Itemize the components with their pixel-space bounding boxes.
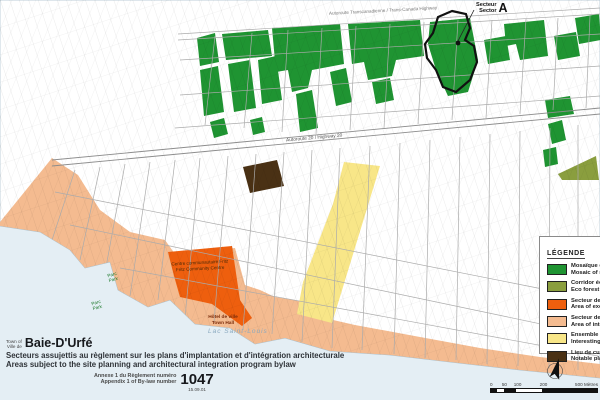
scale-tick: 100 — [514, 382, 522, 387]
title-block: Town of Ville de Baie-D'Urfé Secteurs as… — [6, 337, 476, 392]
legend-item: Corridor écoforestier Eco forest corrido… — [547, 280, 600, 293]
legend-label: Mosaïque de milieux naturels Mosaic of n… — [571, 263, 600, 276]
legend-label-fr: Lieu de culte notable — [571, 350, 600, 357]
legend-label-en: Area of interest — [571, 322, 600, 329]
annexe-label: Annexe 1 du Règlement numéro Appendix 1 … — [94, 373, 176, 386]
map-title-en: Areas subject to the site planning and a… — [6, 360, 476, 370]
scale-tick: 0 — [490, 382, 493, 387]
legend-label-fr: Secteur de valeur intéressante — [571, 315, 600, 322]
legend-swatch-yellow — [547, 333, 567, 344]
legend-label: Lieu de culte notable Notable place of w… — [571, 350, 600, 363]
legend-label: Secteur de valeur intéressante Area of i… — [571, 315, 600, 328]
legend-swatch-olive — [547, 281, 567, 292]
legend-label: Secteur de valeur exceptionnelle Area of… — [571, 298, 600, 311]
town-of-label: Town of Ville de — [6, 339, 22, 350]
legend-label: Corridor écoforestier Eco forest corrido… — [571, 280, 600, 293]
legend-label-en: Interesting urban ensemble — [571, 339, 600, 346]
legend-item: Secteur de valeur intéressante Area of i… — [547, 315, 600, 328]
map-page: Autoroute Transcanadienne / Trans-Canada… — [0, 0, 600, 400]
bylaw-number-block: 1047 15.09.01 — [180, 373, 213, 393]
legend-swatch-orange — [547, 299, 567, 310]
legend-label-fr: Corridor écoforestier — [571, 280, 600, 287]
legend-label-en: Notable place of worship — [571, 356, 600, 363]
legend-swatch-salmon — [547, 316, 567, 327]
legend-label: Ensemble urbain intéressant Interesting … — [571, 332, 600, 345]
legend-item: Secteur de valeur exceptionnelle Area of… — [547, 298, 600, 311]
bylaw-date: 15.09.01 — [180, 387, 213, 392]
legend-label-en: Mosaic of natural areas — [571, 270, 600, 277]
annexe-label-en: Appendix 1 of By-law number — [94, 379, 176, 385]
map-title-fr: Secteurs assujettis au règlement sur les… — [6, 351, 476, 361]
legend-label-fr: Secteur de valeur exceptionnelle — [571, 298, 600, 305]
scale-bar: 0 50 100 200 500 Mètres — [490, 382, 598, 393]
legend-label-fr: Mosaïque de milieux naturels — [571, 263, 600, 270]
scale-tick: 50 — [502, 382, 507, 387]
legend-label-en: Eco forest corridor — [571, 287, 600, 294]
legend-label-fr: Ensemble urbain intéressant — [571, 332, 600, 339]
legend-item: Ensemble urbain intéressant Interesting … — [547, 332, 600, 345]
legend-item: Mosaïque de milieux naturels Mosaic of n… — [547, 263, 600, 276]
legend-title: LÉGENDE — [547, 250, 585, 259]
legend: LÉGENDE Mosaïque de milieux naturels Mos… — [539, 236, 600, 354]
scale-tick: 500 Mètres — [575, 382, 598, 387]
municipality-name: Baie-D'Urfé — [25, 337, 93, 350]
town-of-fr: Ville de — [6, 344, 22, 349]
sector-a-marker-dot — [456, 41, 461, 46]
north-arrow-icon — [543, 357, 567, 383]
legend-swatch-green — [547, 264, 567, 275]
legend-label-en: Area of exceptional value — [571, 304, 600, 311]
scale-tick: 200 — [540, 382, 548, 387]
bylaw-number: 1047 — [180, 373, 213, 387]
scale-bar-graphic — [490, 388, 598, 393]
